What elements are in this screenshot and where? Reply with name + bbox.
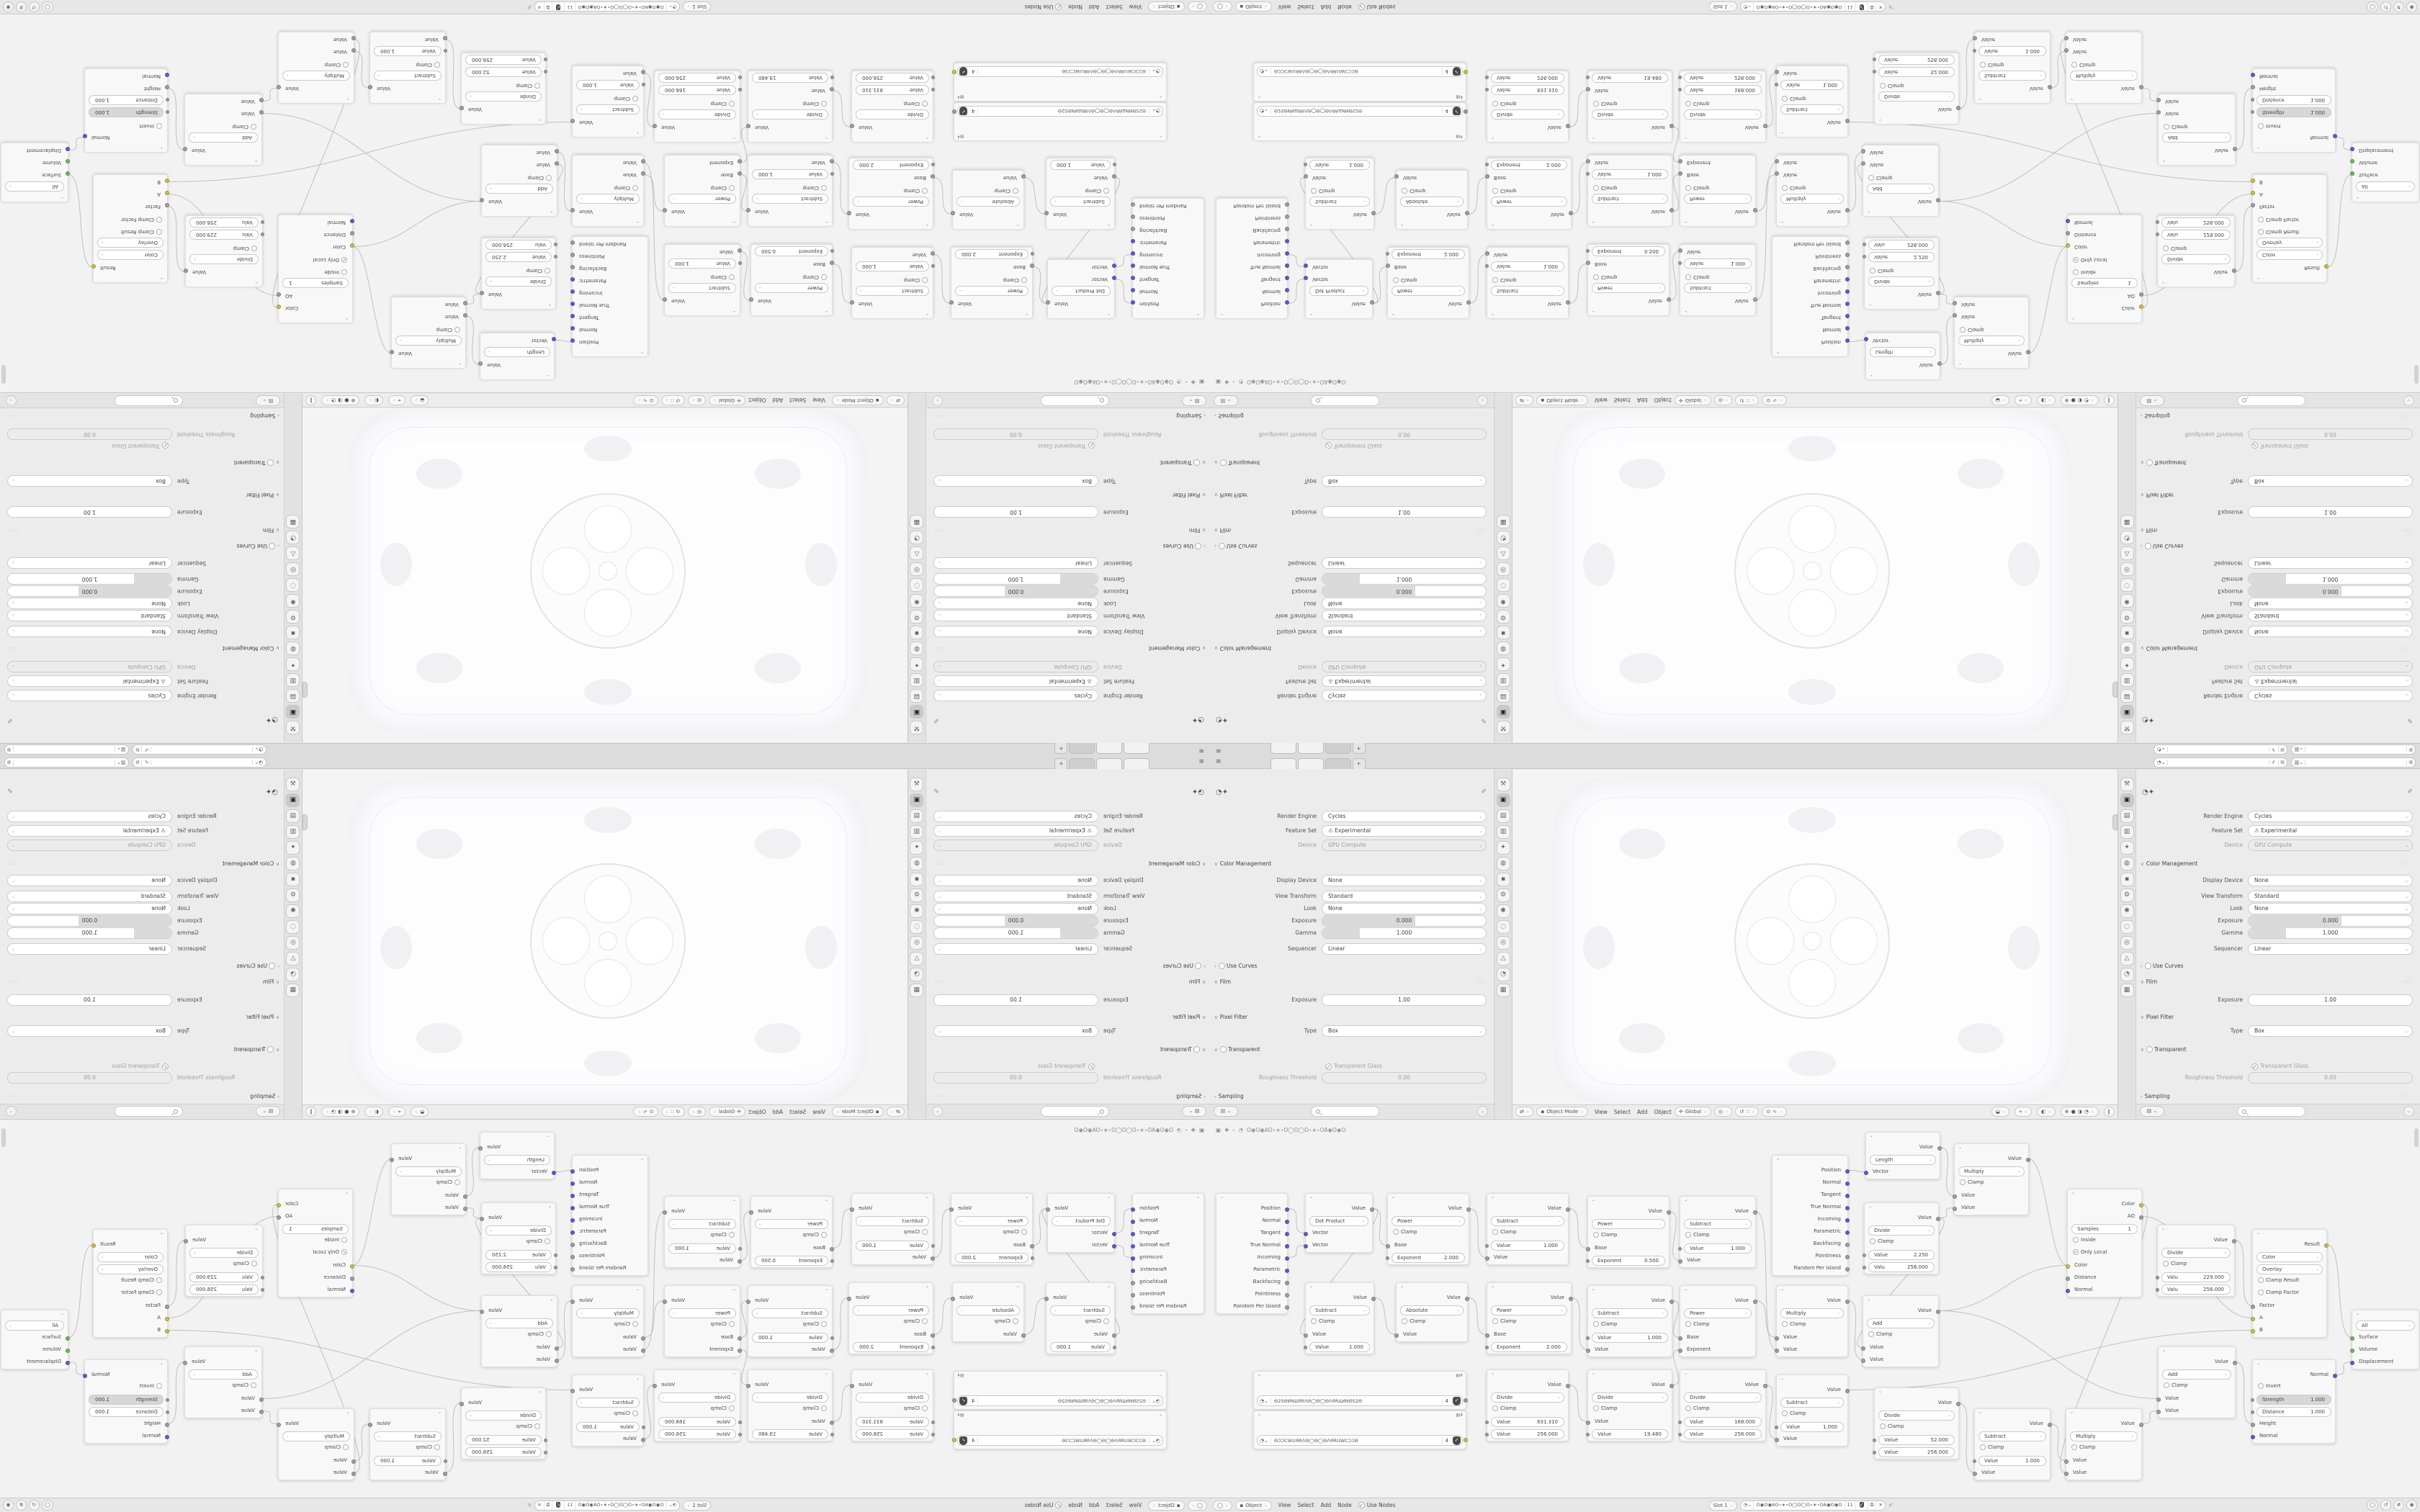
output-socket[interactable] (277, 1215, 281, 1220)
checkbox-clamp[interactable]: Clamp (2164, 1382, 2187, 1388)
node-collapse-icon[interactable]: ⌄ (1400, 223, 1404, 228)
editor-type-button[interactable]: ▤ ⌄ (2140, 395, 2164, 406)
node-sub_b[interactable]: ⌄ValueSubtract⌄ClampValue1.000Value (1680, 1196, 1756, 1268)
checkbox-clamp[interactable]: Clamp (526, 268, 550, 274)
value-field-valu[interactable]: Valu256.000 (189, 217, 259, 228)
properties-options-button[interactable]: ⌄ (1477, 395, 1488, 406)
properties-tab-world-icon[interactable]: ◍ (1497, 857, 1510, 870)
checkbox-clamp-factor[interactable]: Clamp Factor (121, 217, 162, 222)
properties-tab-modifiers-icon[interactable]: ⚙ (910, 888, 924, 902)
workspace-tab-active[interactable] (1069, 758, 1095, 769)
menu-add[interactable]: Add (773, 397, 784, 404)
node-collapse-icon[interactable]: ⌄ (1978, 97, 1982, 102)
node-pow_a[interactable]: ⌄ValuePower⌄ClampBaseExponent2.000 (1387, 1193, 1469, 1265)
operation-dropdown-divide[interactable]: Divide⌄ (2161, 254, 2231, 264)
input-socket[interactable] (1973, 37, 1977, 41)
checkbox-clamp-result[interactable]: Clamp Result (2258, 1277, 2299, 1283)
snap-controls[interactable]: ↺∷⌄ (1735, 1107, 1759, 1117)
properties-search-input[interactable] (2237, 1106, 2305, 1117)
input-socket[interactable] (1775, 172, 1779, 176)
node-bump[interactable]: ⌄NormalInvertStrength1.000Distance1.000H… (2252, 1359, 2336, 1444)
node-collapse-icon[interactable]: ⌄ (732, 1197, 736, 1202)
group-id-selector[interactable]: ◔⌄Θ2SΘИNΔЯRΛΘ◯Θ◯ΘΛЯRΔИNΘS2Θ4✓ (957, 1395, 1163, 1406)
output-socket[interactable] (570, 278, 575, 282)
select-render-engine[interactable]: Cycles⌄ (933, 811, 1098, 822)
shading-mode-buttons[interactable]: ⊕●◑◔⌄ (322, 1107, 360, 1117)
input-socket[interactable] (1485, 1256, 1489, 1261)
input-socket[interactable] (641, 1349, 645, 1353)
operation-dropdown-absolute[interactable]: Absolute⌄ (1400, 1305, 1464, 1315)
input-socket[interactable] (1386, 1256, 1389, 1260)
snapping-button[interactable]: ↺ (29, 1500, 40, 1511)
properties-tab-world-icon[interactable]: ◍ (2120, 642, 2134, 655)
input-socket[interactable] (544, 58, 547, 61)
node-mulT[interactable]: ⌄ValueMultiply⌄ClampValueValue (391, 297, 466, 369)
slider-gamma[interactable]: 1.000 (1322, 927, 1487, 939)
menu-add[interactable]: Add (1637, 397, 1648, 404)
select-device[interactable]: GPU Compute⌄ (933, 840, 1098, 851)
output-socket[interactable] (949, 1207, 954, 1212)
operation-dropdown-overlay[interactable]: Overlay⌄ (2257, 238, 2323, 248)
node-grp1[interactable]: ⌄▤4◔⌄Θ2SΘИNΔЯRΛΘ◯Θ◯ΘΛЯRΔИNΘS2Θ4✓ (954, 1371, 1167, 1410)
node-out1[interactable]: ⌄All⌄SurfaceVolumeDisplacement (2352, 143, 2419, 202)
menu-add[interactable]: Add (1637, 1109, 1648, 1115)
checkbox-clamp[interactable]: Clamp (1870, 1238, 1894, 1244)
node-ao[interactable]: ⌄ColorAOSamples1Inside✓Only LocalColorDi… (2067, 1189, 2142, 1297)
input-socket[interactable] (463, 1207, 467, 1211)
input-socket[interactable] (1113, 1346, 1116, 1349)
input-socket[interactable] (1112, 1232, 1116, 1236)
node-collapse-icon[interactable]: ⌄ (1491, 223, 1494, 228)
node-collapse-icon[interactable]: ⌄ (1491, 1371, 1494, 1376)
operation-dropdown-length[interactable]: Length⌄ (484, 347, 550, 357)
node-geo1[interactable]: ⌄PositionNormalTangentTrue NormalIncomin… (1132, 198, 1204, 319)
section-grip[interactable]: :::: (935, 1092, 944, 1102)
scene-name-field[interactable] (2168, 758, 2269, 767)
checkbox-clamp[interactable]: Clamp (233, 124, 256, 130)
output-socket[interactable] (1131, 1220, 1135, 1224)
checkbox-clamp[interactable]: Clamp (711, 101, 735, 107)
checkbox-clamp[interactable]: Clamp (1960, 327, 1984, 333)
checkbox-clamp[interactable]: Clamp (1685, 101, 1709, 107)
view-layer-copy-icon[interactable]: ⧉ (5, 747, 14, 753)
xray-toggle[interactable]: ◐⌄ (2037, 395, 2056, 405)
node-collapse-icon[interactable]: ⌄ (1868, 303, 1872, 308)
slider-exposure[interactable]: 0.000 (933, 585, 1098, 597)
output-socket[interactable] (91, 265, 96, 269)
node-editor-type-button[interactable]: ◯⌄ (1213, 1500, 1232, 1511)
checkbox-clamp[interactable]: Clamp (1492, 1318, 1516, 1324)
properties-tab-scene-icon[interactable]: ✦ (287, 841, 300, 855)
node-div52[interactable]: ⌄ValueDivide⌄ClampValue52.000Value256.00… (461, 1387, 546, 1459)
node-div831[interactable]: ⌄ValueDivide⌄ClampValue831.310Value256.0… (851, 1369, 933, 1441)
input-socket[interactable] (552, 1171, 556, 1175)
operation-dropdown-subtract[interactable]: Subtract⌄ (1780, 104, 1844, 114)
checkbox-clamp[interactable]: Clamp (2071, 62, 2095, 68)
input-socket[interactable] (2350, 1361, 2354, 1365)
section-grip[interactable]: :::: (9, 977, 17, 987)
select-type[interactable]: Box⌄ (1322, 1025, 1487, 1037)
input-socket[interactable] (463, 1194, 467, 1199)
value-field-value[interactable]: Value168.000 (1684, 1417, 1762, 1427)
input-socket[interactable] (2251, 179, 2255, 184)
operation-dropdown-color[interactable]: Color⌄ (2257, 1252, 2323, 1262)
input-socket[interactable] (1485, 88, 1489, 91)
node-collapse-icon[interactable]: ⌄ (1780, 220, 1784, 225)
select-render-engine[interactable]: Cycles⌄ (7, 811, 172, 822)
node-collapse-icon[interactable]: ⌄ (2257, 276, 2260, 282)
node-abs1[interactable]: ⌄ValueAbsolute⌄ClampValue (1396, 170, 1468, 230)
menu-select[interactable]: Select (1106, 4, 1122, 10)
node-collapse-icon[interactable]: ⌄ (1196, 312, 1200, 318)
value-exposure[interactable]: 1.00 (7, 506, 172, 518)
checkbox-clamp[interactable]: Clamp (516, 1423, 540, 1429)
section-grip[interactable]: :::: (2403, 410, 2411, 420)
section-transparent[interactable]: ∨ Transparent (1214, 1045, 1260, 1055)
node-div831[interactable]: ⌄ValueDivide⌄ClampValue831.310Value256.0… (851, 71, 933, 143)
input-socket[interactable] (1973, 49, 1976, 53)
output-socket[interactable] (1845, 1243, 1850, 1247)
transform-orientation-dropdown[interactable]: ✛Global⌄ (1675, 1107, 1711, 1117)
input-socket[interactable] (738, 88, 742, 91)
input-socket[interactable] (1030, 1244, 1034, 1248)
node-div229[interactable]: ⌄ValueDivide⌄ClampValu229.000Valu256.000 (185, 1225, 263, 1297)
checkbox-clamp[interactable]: Clamp (233, 1261, 257, 1266)
menu-object[interactable]: Object (748, 397, 766, 404)
input-socket[interactable] (259, 1410, 264, 1414)
node-sub1000[interactable]: ⌄ValueSubtract⌄ClampValue1.000Value (1974, 32, 2051, 104)
shading-mode-buttons[interactable]: ⊕●◑◔⌄ (2061, 395, 2099, 405)
properties-tab-view-layer-icon[interactable]: ▥ (287, 673, 300, 687)
checkbox-clamp[interactable]: Clamp (614, 1410, 638, 1416)
select-feature-set[interactable]: ⚠ Experimental⌄ (2248, 825, 2413, 837)
material-slot-dropdown[interactable]: Slot 1⌄ (1709, 1500, 1738, 1511)
input-socket[interactable] (2156, 99, 2161, 103)
node-collapse-icon[interactable]: ⌄ (1025, 1194, 1028, 1200)
value-field-value[interactable]: Value52.000 (465, 67, 542, 77)
node-collapse-icon[interactable]: ⌄ (2257, 1361, 2260, 1366)
operation-dropdown-subtract[interactable]: Subtract⌄ (1978, 1431, 2046, 1441)
input-socket[interactable] (165, 1423, 169, 1427)
xray-toggle[interactable]: ◐⌄ (2037, 1107, 2056, 1117)
node-editor-type-button[interactable]: ◯⌄ (1188, 2, 1207, 12)
view-layer-name-field[interactable] (14, 758, 115, 767)
operation-dropdown-color[interactable]: Color⌄ (2257, 250, 2323, 260)
material-slot-dropdown[interactable]: Slot 1⌄ (1709, 2, 1738, 12)
material-unlink-icon[interactable]: ✕ (535, 1500, 544, 1510)
select-feature-set[interactable]: ⚠ Experimental⌄ (1322, 675, 1487, 687)
input-socket[interactable] (1031, 252, 1034, 256)
output-socket[interactable] (1131, 203, 1135, 207)
node-mulB[interactable]: ⌄ValueMultiply⌄ClampValueValue (278, 32, 354, 104)
node-collapse-icon[interactable]: ⌄ (825, 1371, 828, 1376)
operation-dropdown-divide[interactable]: Divide⌄ (1868, 1225, 1935, 1236)
shader-type-dropdown[interactable]: ▪Object⌄ (1235, 2, 1271, 12)
node-sub1000[interactable]: ⌄ValueSubtract⌄ClampValue1.000Value (369, 1408, 446, 1480)
input-socket[interactable] (1586, 172, 1590, 176)
input-socket[interactable] (1775, 71, 1779, 75)
select-sequencer[interactable]: Linear⌄ (7, 943, 172, 955)
input-socket[interactable] (1873, 1451, 1876, 1454)
output-socket[interactable] (1465, 1297, 1469, 1301)
material-pin-icon[interactable]: ✐ (1888, 1502, 1894, 1508)
properties-tab-render-icon[interactable]: ▣ (287, 705, 300, 719)
section-grip[interactable]: :::: (2403, 1092, 2411, 1102)
input-socket[interactable] (1485, 1333, 1489, 1338)
operation-dropdown-divide[interactable]: Divide⌄ (465, 91, 542, 102)
select-view-transform[interactable]: Standard⌄ (933, 891, 1098, 902)
node-editor-scrollbar[interactable] (2414, 1128, 2419, 1147)
node-collapse-icon[interactable]: ⌄ (160, 1361, 163, 1366)
operation-dropdown-multiply[interactable]: Multiply⌄ (2070, 1431, 2138, 1441)
node-collapse-icon[interactable]: ⌄ (1978, 1410, 1982, 1415)
output-socket[interactable] (570, 120, 575, 124)
rendered-object[interactable] (1554, 778, 2070, 1104)
value-exposure[interactable]: 1.00 (2248, 994, 2413, 1006)
properties-tab-material-icon[interactable]: ◔ (287, 968, 300, 981)
node-ao[interactable]: ⌄ColorAOSamples1Inside✓Only LocalColorDi… (2067, 215, 2142, 323)
section-sampling[interactable]: ›Sampling (1214, 410, 1244, 420)
section-color-management[interactable]: ∨Color Management (1214, 643, 1271, 653)
output-socket[interactable] (570, 241, 575, 246)
properties-tab-view-layer-icon[interactable]: ▥ (2120, 673, 2134, 687)
node-sub_a[interactable]: ⌄ValueSubtract⌄ClampValue1.000Value (1487, 1193, 1569, 1265)
output-socket[interactable] (460, 1402, 464, 1406)
material-pin-icon[interactable]: ✐ (1888, 4, 1894, 10)
section-use-curves[interactable]: › Use Curves (1163, 541, 1206, 551)
properties-tab-material-icon[interactable]: ◔ (287, 531, 300, 544)
group-shield-icon[interactable]: ✓ (1453, 68, 1461, 76)
node-abs1[interactable]: ⌄ValueAbsolute⌄ClampValue (1396, 1282, 1468, 1342)
input-socket[interactable] (1304, 175, 1308, 179)
view-layer-selector[interactable]: ▥⌄ ⧉ (2291, 757, 2416, 768)
input-socket[interactable] (2066, 1289, 2070, 1293)
node-mulT[interactable]: ⌄ValueMultiply⌄ClampValueValue (391, 1143, 466, 1215)
scene-selector[interactable]: ◔⌄ ✐ ⧉ (2154, 757, 2287, 768)
properties-tab-scene-icon[interactable]: ✦ (2120, 657, 2134, 671)
select-feature-set[interactable]: ⚠ Experimental⌄ (1322, 825, 1487, 837)
node-collapse-icon[interactable]: ⌄ (926, 1194, 929, 1200)
node-collapse-icon[interactable]: ⌄ (1958, 1145, 1962, 1150)
viewport-3d[interactable]: ⇄⌄ ▪Object Mode⌄ View Select Add Object … (302, 770, 907, 1118)
transform-orientation-dropdown[interactable]: ✛Global⌄ (709, 395, 745, 405)
node-collapse-icon[interactable]: ⌄ (1958, 362, 1962, 367)
menu-select[interactable]: Select (1614, 1109, 1631, 1115)
select-look[interactable]: None⌄ (7, 903, 172, 914)
overlays-dropdown[interactable]: ⌖⌄ (2015, 395, 2032, 405)
proportional-editing-controls[interactable]: ⊙∿⌄ (633, 395, 658, 405)
select-device[interactable]: GPU Compute⌄ (2248, 840, 2413, 851)
value-field-value[interactable]: Value52.000 (465, 1435, 542, 1445)
properties-options-button[interactable]: ⌄ (6, 395, 17, 406)
input-socket[interactable] (738, 1421, 742, 1424)
group-user-count[interactable]: 4 (1442, 1438, 1451, 1444)
group-name[interactable]: Θ2SΘИNΔЯRΛΘ◯Θ◯ΘΛЯRΔИNΘS2Θ (978, 109, 1149, 114)
menu-select[interactable]: Select (1106, 1502, 1122, 1508)
group-user-count[interactable]: 4 (969, 1398, 978, 1404)
properties-tab-render-icon[interactable]: ▣ (2120, 793, 2134, 807)
properties-tab-physics-icon[interactable]: ◌ (1497, 920, 1510, 934)
output-socket[interactable] (850, 1384, 854, 1388)
value-field-value[interactable]: Value1.000 (856, 1241, 929, 1251)
input-socket[interactable] (1678, 1247, 1682, 1251)
output-socket[interactable] (1285, 1244, 1289, 1248)
input-socket[interactable] (1953, 1194, 1957, 1199)
properties-tab-data-icon[interactable]: △ (287, 546, 300, 560)
input-socket[interactable] (1485, 252, 1489, 256)
output-socket[interactable] (1285, 1220, 1289, 1224)
node-grp2[interactable]: ⌄▤4◔⌄ΘƆƆCWUЯRΛΘ◯Θ◯ΘΛЯRUWCƆƆΘ4✓ (954, 63, 1167, 102)
node-collapse-icon[interactable]: ⌄ (1491, 1194, 1494, 1200)
node-out1[interactable]: ⌄All⌄SurfaceVolumeDisplacement (1, 1310, 68, 1369)
output-socket[interactable] (1667, 1210, 1671, 1215)
input-socket[interactable] (1973, 1472, 1977, 1476)
node-collapse-icon[interactable]: ⌄ (458, 362, 462, 367)
operation-dropdown-subtract[interactable]: Subtract⌄ (1592, 1308, 1668, 1318)
checkbox-clamp[interactable]: Clamp (1980, 62, 2004, 68)
node-add2[interactable]: ⌄ValueAdd⌄ClampValueValue (184, 1346, 262, 1418)
section-transparent[interactable]: ∨ Transparent (233, 457, 279, 467)
overlays-dropdown[interactable]: ⌖⌄ (388, 395, 405, 405)
output-socket[interactable] (1566, 1207, 1570, 1212)
node-collapse-icon[interactable]: ⌄ (1258, 95, 1261, 100)
operation-dropdown-length[interactable]: Length⌄ (1870, 1155, 1936, 1165)
properties-tab-object-icon[interactable]: ▪ (910, 873, 924, 886)
value-field-value[interactable]: Value1.000 (576, 1422, 640, 1432)
menu-node[interactable]: Node (1337, 4, 1352, 10)
output-socket[interactable] (746, 125, 750, 129)
snapping-button[interactable]: ↺ (2380, 1500, 2391, 1511)
input-socket[interactable] (931, 1346, 935, 1349)
select-display-device[interactable]: None⌄ (1322, 875, 1487, 886)
fake-user-shield-icon[interactable]: ✓ (1855, 1500, 1868, 1510)
value-roughness-threshold[interactable]: 0.00 (1322, 428, 1487, 440)
group-shield-icon[interactable]: ✓ (1453, 1397, 1461, 1405)
node-collapse-icon[interactable]: ⌄ (1592, 220, 1595, 225)
section-film[interactable]: ∨Film (1189, 977, 1206, 987)
menu-add[interactable]: Add (1089, 1502, 1100, 1508)
select-render-engine[interactable]: Cycles⌄ (1322, 811, 1487, 822)
operation-dropdown-divide[interactable]: Divide⌄ (2161, 1248, 2231, 1258)
node-mul2[interactable]: ⌄ValueMultiply⌄ClampValueValue (572, 155, 644, 227)
section-grip[interactable]: :::: (935, 977, 944, 987)
checkbox-clamp[interactable]: Clamp (2071, 1444, 2095, 1450)
input-socket[interactable] (1953, 1207, 1957, 1211)
value-field-exponent[interactable]: Exponent2.000 (853, 1342, 929, 1352)
checkbox-clamp[interactable]: Clamp (995, 188, 1018, 194)
input-socket[interactable] (1775, 1426, 1778, 1429)
section-transparent[interactable]: ∨ Transparent (233, 1045, 279, 1055)
operation-dropdown-dot-product[interactable]: Dot Product⌄ (1309, 286, 1368, 296)
value-field-strength[interactable]: Strength1.000 (2257, 1395, 2331, 1405)
scene-copy-icon[interactable]: ⧉ (133, 747, 142, 753)
input-socket[interactable] (1775, 1349, 1779, 1353)
gizmo-dropdown[interactable]: ◒⌄ (411, 395, 429, 405)
node-pow_05[interactable]: ⌄ValuePower⌄ClampBaseExponent0.500 (750, 244, 833, 316)
input-socket[interactable] (261, 1288, 264, 1292)
input-socket[interactable] (738, 1433, 742, 1436)
output-socket[interactable] (653, 1384, 657, 1388)
operation-dropdown-subtract[interactable]: Subtract⌄ (1780, 1398, 1844, 1408)
checkbox-clamp[interactable]: Clamp (711, 274, 735, 280)
checkbox-clamp[interactable]: Clamp (1880, 83, 1904, 89)
node-collapse-icon[interactable]: ⌄ (160, 146, 163, 151)
operation-dropdown-length[interactable]: Length⌄ (484, 1155, 550, 1165)
operation-dropdown-multiply[interactable]: Multiply⌄ (282, 1431, 350, 1441)
checkbox-clamp[interactable]: Clamp (711, 1405, 735, 1411)
input-socket[interactable] (1678, 1421, 1682, 1424)
properties-tab-data-icon[interactable]: △ (1497, 952, 1510, 966)
select-device[interactable]: GPU Compute⌄ (933, 661, 1098, 672)
menu-node[interactable]: Node (1068, 4, 1083, 10)
node-geo1[interactable]: ⌄PositionNormalTangentTrue NormalIncomin… (1216, 198, 1288, 319)
section-grip[interactable]: :::: (9, 859, 17, 869)
output-socket[interactable] (570, 1230, 575, 1235)
section-color-management[interactable]: ∨Color Management (223, 643, 279, 653)
input-socket[interactable] (738, 1247, 742, 1251)
node-grp1[interactable]: ⌄▤4◔⌄Θ2SΘИNΔЯRΛΘ◯Θ◯ΘΛЯRΔИNΘS2Θ4✓ (1253, 1371, 1466, 1410)
output-socket[interactable] (1131, 1256, 1135, 1261)
section-use-curves[interactable]: › Use Curves (2141, 961, 2183, 971)
output-socket[interactable] (570, 1255, 575, 1259)
properties-search-input[interactable] (115, 1106, 183, 1117)
section-grip[interactable]: :::: (935, 643, 944, 653)
slider-exposure[interactable]: 0.000 (1322, 915, 1487, 927)
section-film[interactable]: ∨Film (263, 977, 279, 987)
checkbox-invert[interactable]: Invert (139, 1383, 162, 1389)
editor-mode-switch[interactable]: ⇄⌄ (1515, 1107, 1533, 1117)
checkbox-clamp[interactable]: Clamp (803, 1321, 827, 1327)
slider-exposure[interactable]: 0.000 (933, 915, 1098, 927)
value-field-samples[interactable]: Samples1 (2071, 278, 2138, 288)
properties-tab-tool-icon[interactable]: ⚒ (1497, 778, 1510, 791)
node-canvas[interactable]: ▣ ✚ › ◔ O◉O◉AO∘∗∘O◯O◯O∘∗∘OA◉O◉O ⌄Positio… (1210, 14, 2420, 392)
input-socket[interactable] (350, 1289, 354, 1293)
node-div225[interactable]: ⌄ValueDivide⌄ClampValue2.250Valu256.000 (1864, 1202, 1939, 1274)
properties-tab-output-icon[interactable]: ▤ (2120, 809, 2134, 823)
select-display-device[interactable]: None⌄ (2248, 626, 2413, 637)
input-socket[interactable] (1678, 261, 1682, 265)
operation-dropdown-power[interactable]: Power⌄ (955, 286, 1028, 296)
select-look[interactable]: None⌄ (1322, 903, 1487, 914)
value-field-value[interactable]: Value19.480 (752, 73, 828, 83)
node-collapse-icon[interactable]: ⌄ (458, 1145, 462, 1150)
checkbox-clamp[interactable]: Clamp (325, 62, 349, 68)
input-socket[interactable] (165, 1329, 169, 1333)
output-socket[interactable] (2324, 1243, 2329, 1248)
properties-tab-material-icon[interactable]: ◔ (910, 531, 924, 544)
properties-tab-object-icon[interactable]: ▪ (287, 873, 300, 886)
properties-tab-data-icon[interactable]: △ (2120, 952, 2134, 966)
node-bump[interactable]: ⌄NormalInvertStrength1.000Distance1.000H… (84, 68, 168, 153)
properties-options-button[interactable]: ⌄ (2403, 1106, 2414, 1117)
scene-pin-icon[interactable]: ✐ (142, 747, 151, 752)
output-socket[interactable] (1131, 1305, 1135, 1310)
input-socket[interactable] (1031, 1256, 1034, 1260)
node-collapse-icon[interactable]: ⌄ (1196, 1194, 1200, 1200)
section-sampling[interactable]: ›Sampling (1214, 1092, 1244, 1102)
checkbox-inside[interactable]: Inside (324, 269, 347, 275)
workspace-tab[interactable] (1124, 744, 1149, 755)
input-socket[interactable] (1861, 1359, 1865, 1363)
select-feature-set[interactable]: ⚠ Experimental⌄ (2248, 675, 2413, 687)
properties-tab-modifiers-icon[interactable]: ⚙ (1497, 888, 1510, 902)
output-socket[interactable] (1285, 1305, 1289, 1310)
section-transparent[interactable]: ∨ Transparent (1214, 457, 1260, 467)
operation-dropdown-power[interactable]: Power⌄ (1491, 1305, 1567, 1315)
scene-copy-icon[interactable]: ⧉ (2278, 747, 2287, 753)
node-collapse-icon[interactable]: ⌄ (1391, 312, 1395, 318)
